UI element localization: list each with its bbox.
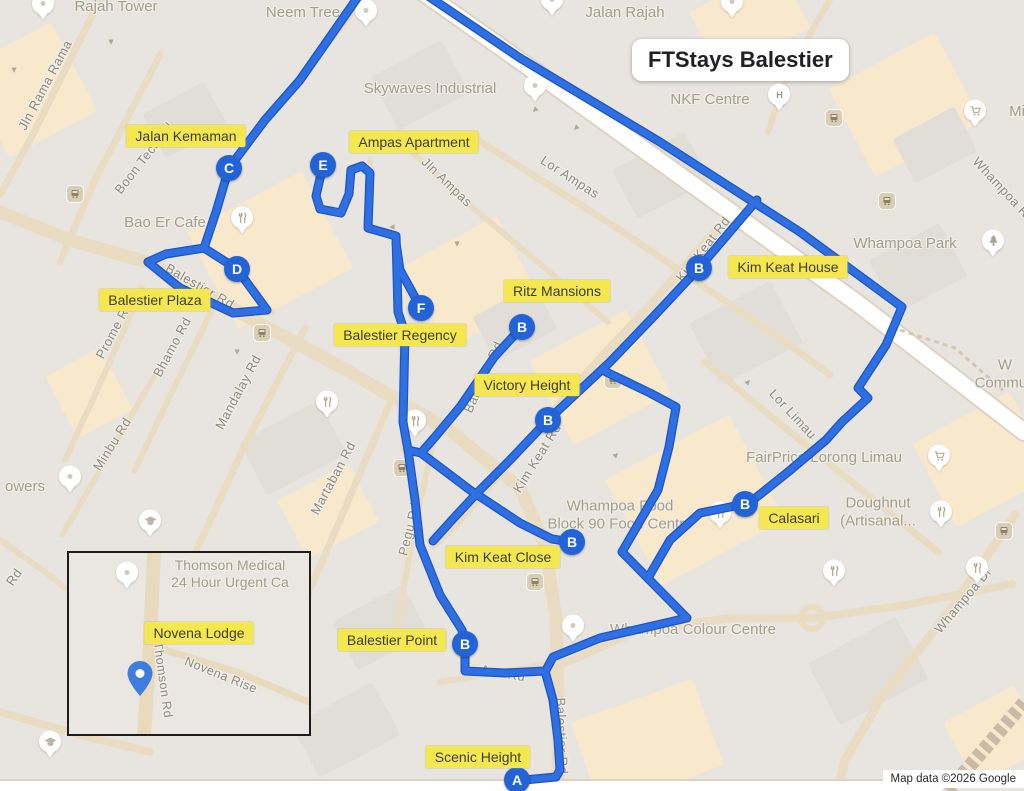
stop-label: Novena Lodge — [144, 622, 253, 644]
stop-label: Ampas Apartment — [349, 131, 478, 153]
route-marker-C[interactable]: C — [216, 155, 242, 181]
route-marker-F[interactable]: F — [408, 295, 434, 321]
route-marker-B[interactable]: B — [452, 631, 478, 657]
route-marker-B[interactable]: B — [559, 529, 585, 555]
stop-label: Ritz Mansions — [504, 280, 610, 302]
route-marker-A[interactable]: A — [504, 767, 530, 791]
stop-label: Kim Keat House — [728, 256, 847, 278]
stop-label: Victory Height — [475, 374, 580, 396]
location-pin-icon — [126, 668, 154, 698]
poi-label: Thomson Medical24 Hour Urgent Ca — [171, 557, 289, 591]
stop-label: Calasari — [759, 507, 828, 529]
route-marker-E[interactable]: E — [310, 152, 336, 178]
stop-label: Kim Keat Close — [446, 546, 560, 568]
stop-label: Balestier Point — [338, 629, 446, 651]
route-marker-D[interactable]: D — [224, 256, 250, 282]
stop-label: Balestier Plaza — [99, 289, 210, 311]
route-marker-B[interactable]: B — [732, 491, 758, 517]
route-marker-B[interactable]: B — [686, 255, 712, 281]
map-title: FTStays Balestier — [632, 39, 849, 81]
inset-map: Thomson Medical24 Hour Urgent CaNovena R… — [67, 551, 311, 736]
map-canvas[interactable]: Jln Rama RamaBoon Teck RdBalestier RdPro… — [0, 0, 1024, 791]
stop-label: Jalan Kemaman — [126, 125, 245, 147]
generic-pin-icon — [116, 562, 138, 589]
stop-label: Balestier Regency — [334, 324, 466, 346]
route-marker-B[interactable]: B — [509, 314, 535, 340]
map-attribution: Map data ©2026 Google — [883, 770, 1024, 788]
route-marker-B[interactable]: B — [535, 407, 561, 433]
stop-label: Scenic Height — [426, 746, 530, 768]
